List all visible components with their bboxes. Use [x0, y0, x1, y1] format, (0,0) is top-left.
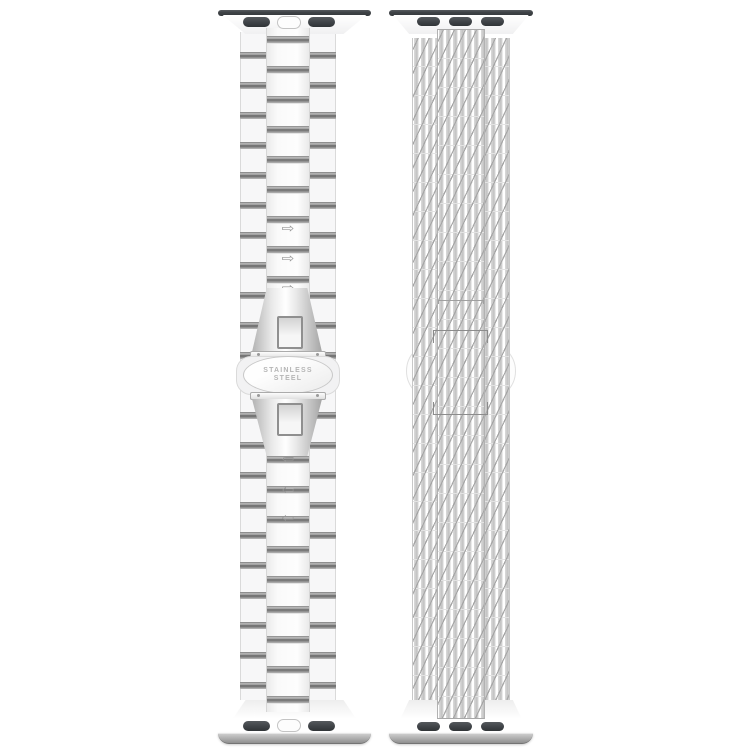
clasp-screw-dot: [316, 394, 319, 397]
mesh-center-column: [437, 29, 485, 719]
clasp-screw-dot: [257, 394, 260, 397]
lug-slot: [308, 17, 335, 27]
clasp-outline-upper: [433, 330, 488, 343]
adapter-base-bottom-right: [389, 733, 533, 744]
lug-slot: [243, 721, 270, 731]
arrow-right-icon: ⇨: [277, 252, 299, 264]
lug-slot: [308, 721, 335, 731]
clasp-screw-dot: [316, 353, 319, 356]
arrow-left-icon: ⇦: [277, 484, 299, 496]
clasp-window-lower: [277, 403, 303, 436]
clasp-outline-lower: [433, 402, 488, 415]
lug-slot: [243, 17, 270, 27]
clasp-screw-dot: [257, 353, 260, 356]
clasp-hinge-plate-lower: [250, 392, 326, 400]
lug-slot: [449, 722, 472, 731]
lug-slot: [481, 722, 504, 731]
adapter-release-button: [277, 16, 301, 29]
lug-slot: [481, 17, 504, 26]
clasp-window-upper: [277, 316, 303, 349]
product-stage: ⇨ ⇨ ⇨ ⇦ ⇦ ⇦ STAINLESS STEEL: [0, 0, 750, 750]
clasp-engraving-line1: STAINLESS: [263, 367, 313, 375]
arrow-right-icon: ⇨: [277, 222, 299, 234]
butterfly-clasp: STAINLESS STEEL: [236, 288, 340, 456]
adapter-release-button: [277, 719, 301, 732]
lug-slot: [449, 17, 472, 26]
lug-slot: [417, 17, 440, 26]
clasp-engraving-line2: STEEL: [274, 375, 303, 383]
arrow-left-icon: ⇦: [277, 512, 299, 524]
lug-slot: [417, 722, 440, 731]
adapter-base-bottom-left: [218, 733, 371, 744]
mesh-seam-outline: [438, 300, 484, 304]
clasp-cover-oval: STAINLESS STEEL: [243, 356, 333, 394]
